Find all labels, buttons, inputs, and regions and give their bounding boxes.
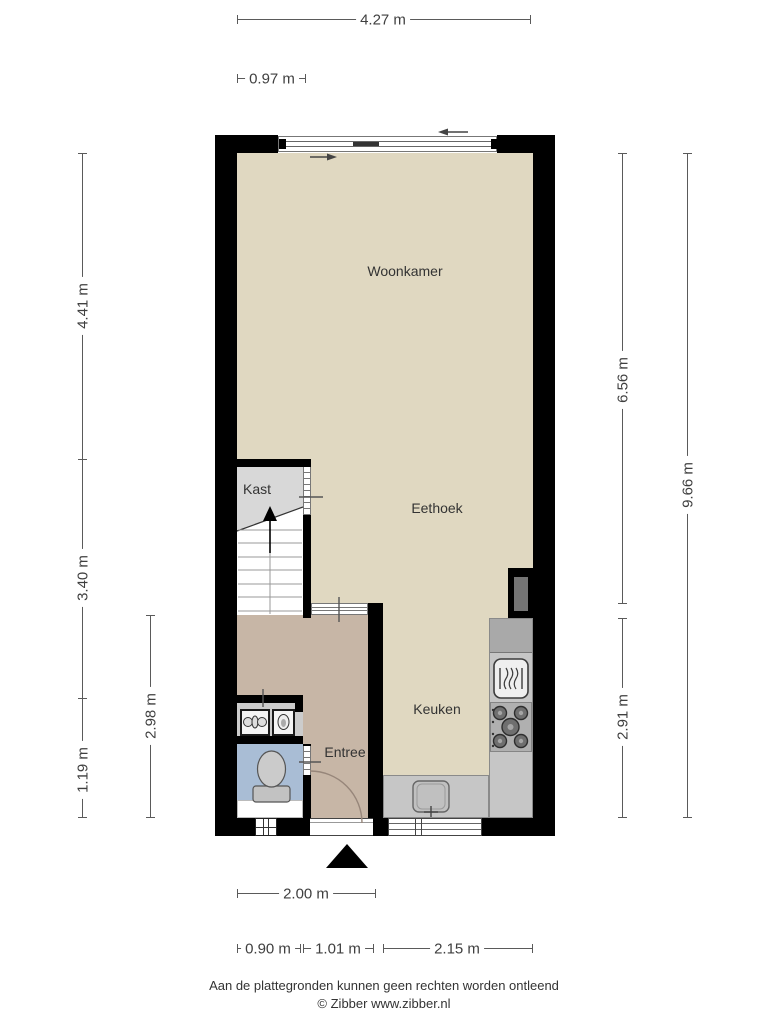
kitchen-sink-icon [413,781,449,817]
room-label-keuken: Keuken [413,701,460,717]
slider-arrow-left [438,129,468,136]
plan-overlay [0,0,768,1024]
room-label-entree: Entree [324,744,365,760]
toilet-fixture [253,751,290,802]
slider-arrow-right [310,154,337,161]
fountain-sink-fixture [273,710,294,735]
front-door-arc [310,771,362,823]
entrance-arrow [326,844,368,868]
room-label-kast: Kast [243,481,271,497]
room-label-eethoek: Eethoek [411,500,462,516]
oven-icon [494,659,528,698]
gas-hob-icon [492,707,528,748]
floorplan-page: Woonkamer Eethoek Kast Keuken Entree 4.2… [0,0,768,1024]
room-label-woonkamer: Woonkamer [367,263,442,279]
washbasin-fixture [241,710,269,735]
